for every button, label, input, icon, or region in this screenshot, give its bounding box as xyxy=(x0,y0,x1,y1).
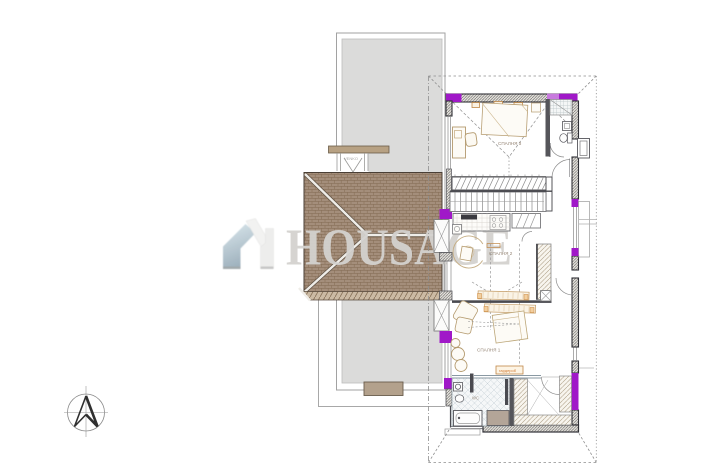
svg-text:СПАЛНЯ 2: СПАЛНЯ 2 xyxy=(489,251,513,256)
svg-text:СПАЛНЯ 3: СПАЛНЯ 3 xyxy=(498,141,522,146)
svg-text:гардероб: гардероб xyxy=(499,368,517,373)
svg-text:СПАЛНЯ 1: СПАЛНЯ 1 xyxy=(477,348,501,353)
svg-text:WC: WC xyxy=(472,396,479,401)
svg-text:VENKO: VENKO xyxy=(344,156,358,161)
